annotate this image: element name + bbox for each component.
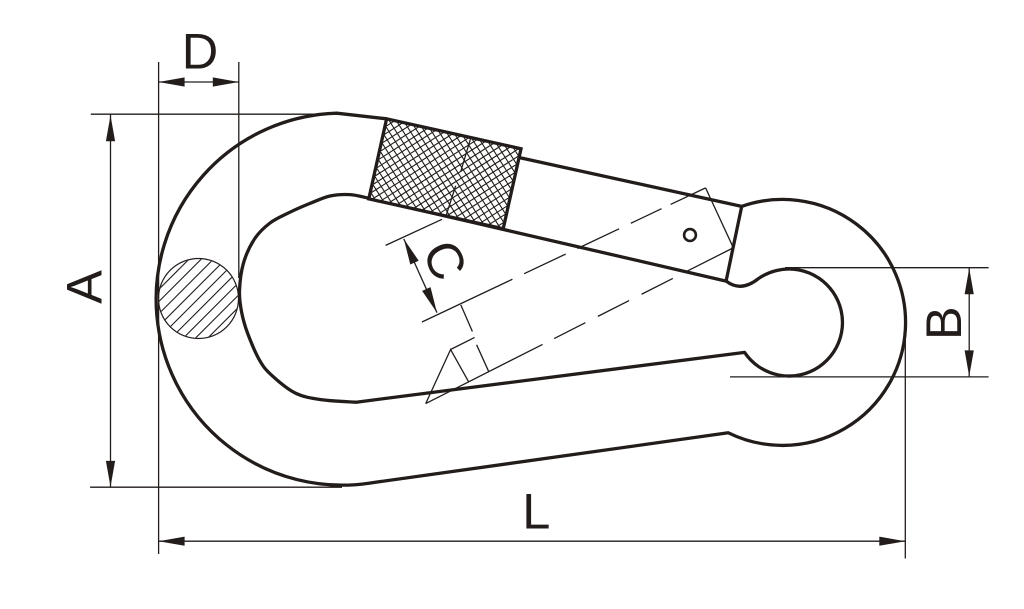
svg-text:B: B (915, 306, 972, 340)
svg-text:A: A (56, 270, 113, 304)
svg-text:L: L (522, 482, 550, 539)
svg-text:D: D (182, 23, 218, 80)
